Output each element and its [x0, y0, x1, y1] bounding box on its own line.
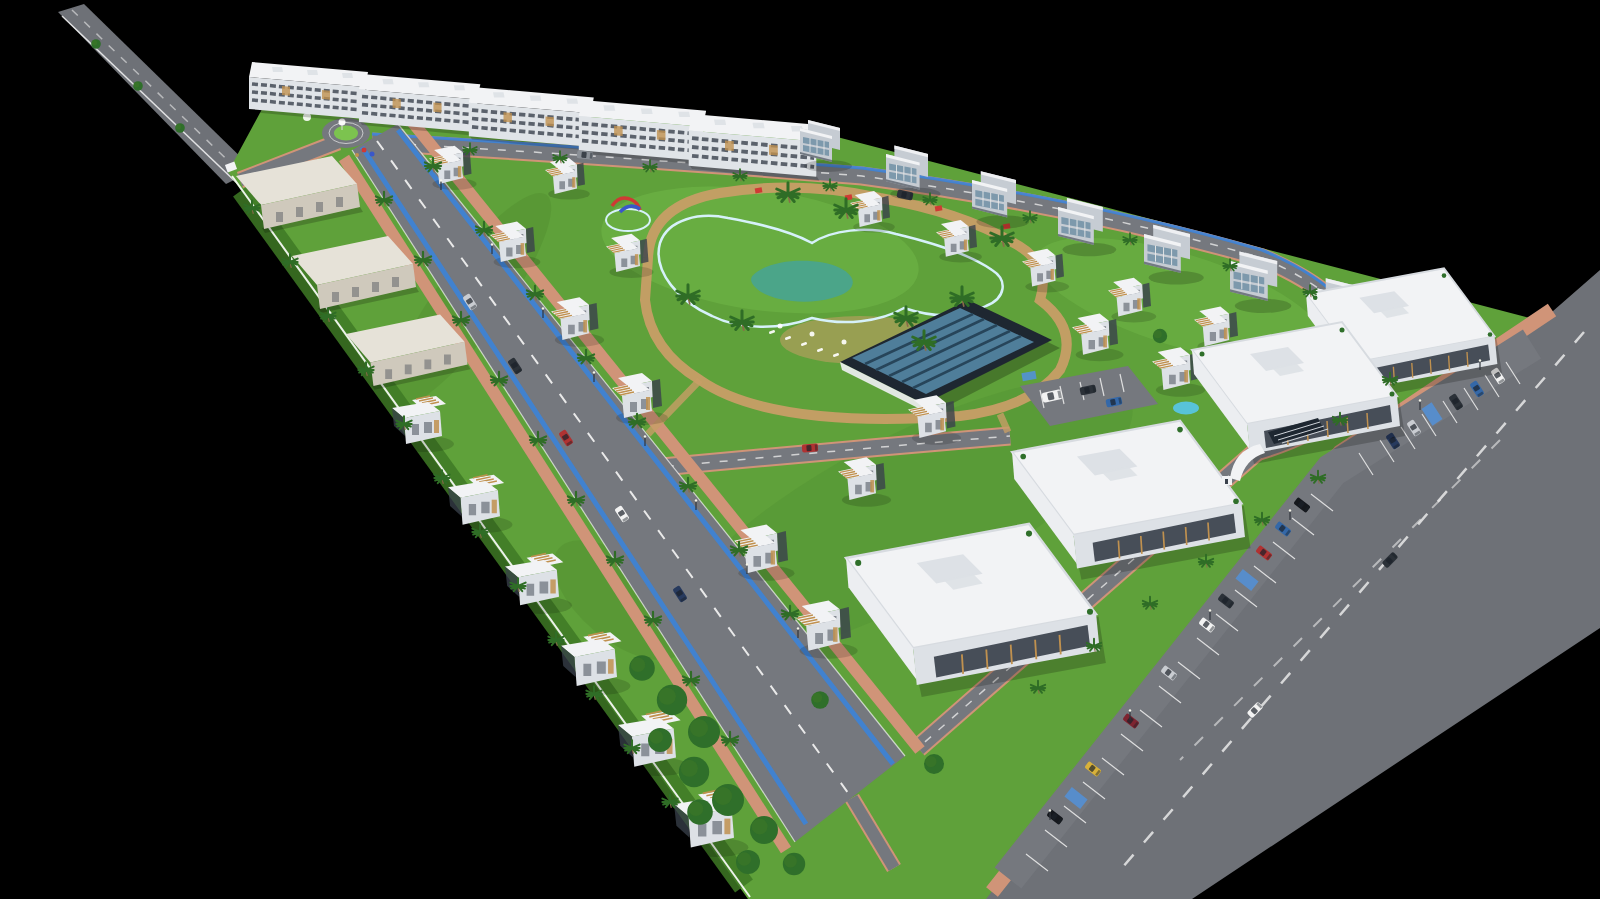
roadside-bush	[133, 81, 143, 91]
tree	[736, 850, 760, 874]
masterplan-rendering	[0, 0, 1600, 899]
tree	[750, 816, 778, 844]
roadside-bush	[175, 123, 185, 133]
splash-pad	[1173, 402, 1199, 415]
tree	[1153, 329, 1167, 343]
rendering-canvas	[0, 0, 1600, 899]
tree	[648, 728, 672, 752]
tree	[783, 853, 805, 875]
car	[802, 443, 819, 452]
tree	[811, 691, 829, 709]
tree	[688, 716, 720, 748]
tree	[712, 784, 744, 816]
car	[577, 150, 594, 160]
tree	[924, 754, 944, 774]
tree	[679, 757, 709, 787]
tree	[629, 655, 655, 681]
tree	[687, 799, 713, 825]
roadside-bush	[91, 39, 101, 49]
tree	[657, 685, 687, 715]
